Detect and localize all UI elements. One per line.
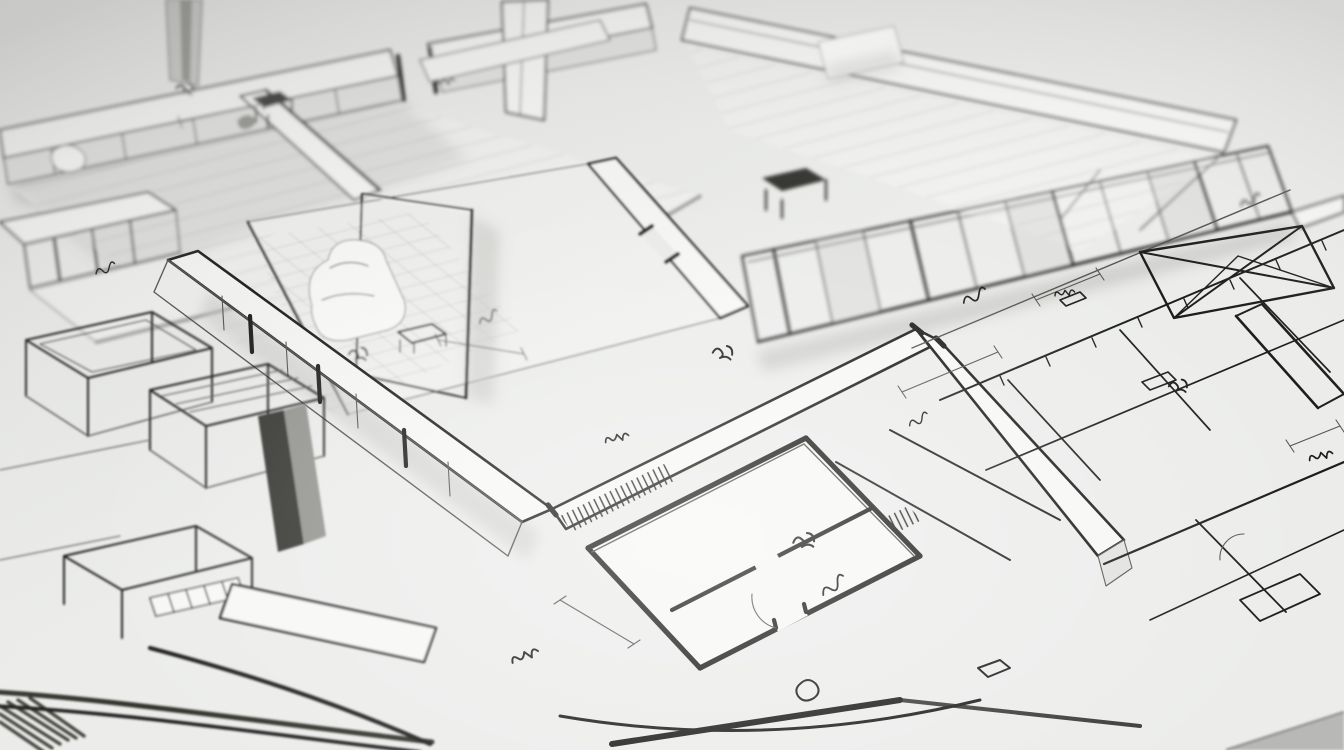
vignette bbox=[0, 0, 1344, 750]
sketch-svg: Architectural floor plan sketch bbox=[0, 0, 1344, 750]
architectural-sketch: Architectural floor plan sketch Architec… bbox=[0, 0, 1344, 750]
lighting-overlay bbox=[0, 0, 1344, 750]
sketch-stage: Architectural floor plan sketch Architec… bbox=[0, 0, 1344, 750]
